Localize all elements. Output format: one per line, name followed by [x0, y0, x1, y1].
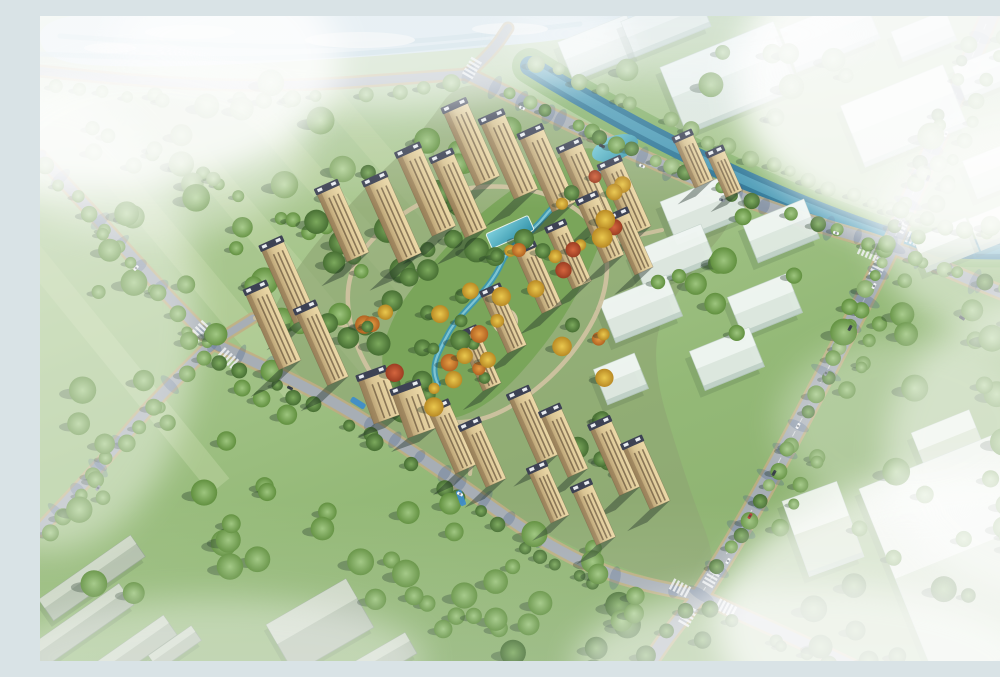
aerial-masterplan-rendering	[40, 16, 1000, 661]
fog-overlay	[40, 16, 1000, 661]
rendering-canvas	[40, 16, 1000, 661]
